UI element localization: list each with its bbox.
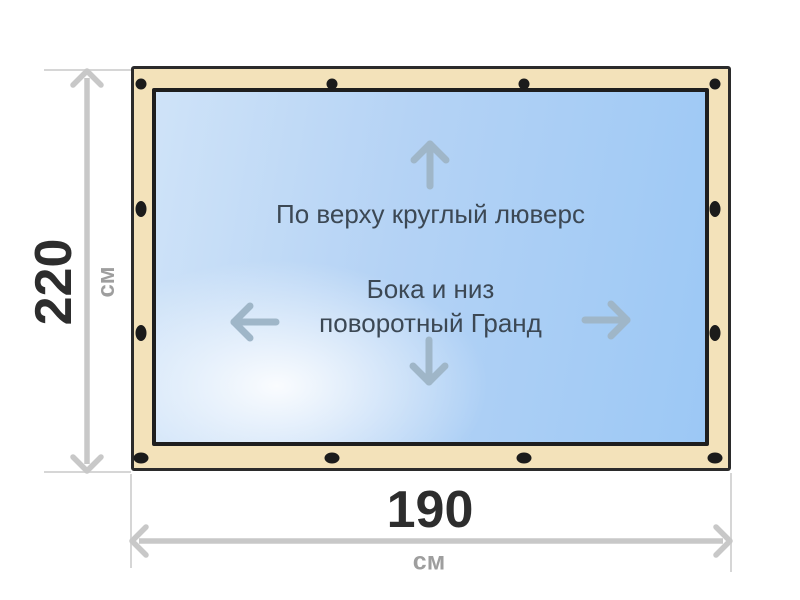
- grommet: [136, 201, 147, 217]
- middle-note-line1: Бока и низ: [152, 272, 709, 306]
- grommet: [710, 79, 721, 90]
- down-arrow-icon: [406, 336, 452, 392]
- grommet: [708, 453, 723, 464]
- middle-note: Бока и низ поворотный Гранд: [152, 272, 709, 340]
- grommet: [519, 79, 530, 90]
- height-dimension-unit: см: [93, 266, 121, 297]
- height-dimension-value: 220: [24, 239, 84, 326]
- width-dimension-value: 190: [387, 480, 474, 540]
- grommet: [134, 453, 149, 464]
- grommet: [136, 325, 147, 341]
- grommet: [710, 325, 721, 341]
- product-diagram: По верху круглый люверс Бока и низ повор…: [0, 0, 800, 600]
- grommet: [327, 79, 338, 90]
- up-arrow-icon: [407, 134, 453, 190]
- grommet: [517, 453, 532, 464]
- grommet: [136, 79, 147, 90]
- top-note: По верху круглый люверс: [152, 197, 709, 231]
- width-dimension-unit: см: [413, 548, 445, 577]
- grommet: [325, 453, 340, 464]
- grommet: [710, 201, 721, 217]
- middle-note-line2: поворотный Гранд: [152, 306, 709, 340]
